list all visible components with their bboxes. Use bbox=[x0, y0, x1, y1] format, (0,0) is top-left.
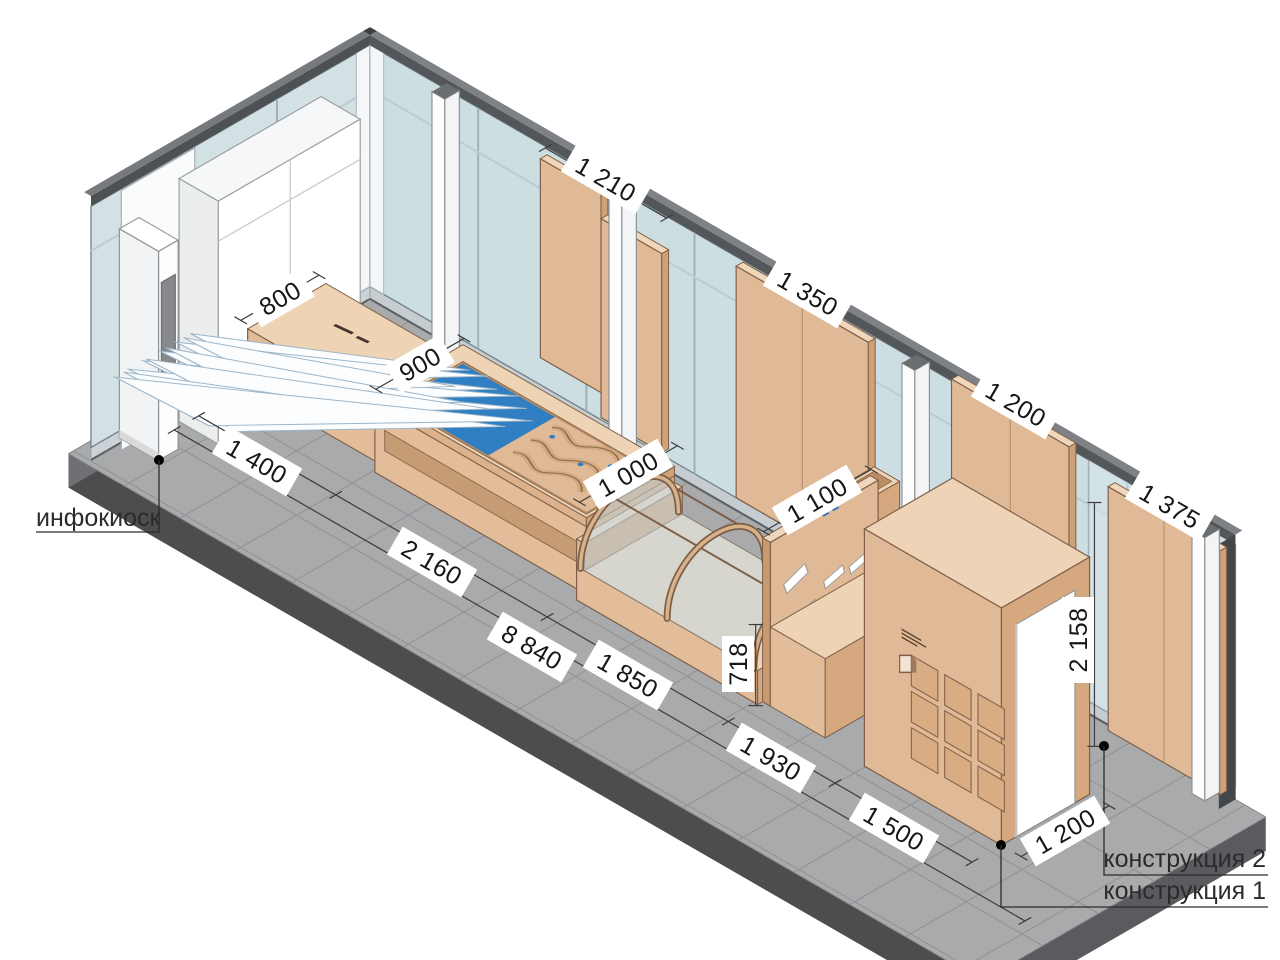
dim-glass-door-height: 2 158 bbox=[1062, 597, 1094, 683]
dim-counter-height: 718 bbox=[722, 636, 754, 692]
infokiosk bbox=[119, 218, 178, 461]
construction-1-label: конструкция 1 bbox=[1103, 877, 1266, 905]
svg-text:718: 718 bbox=[725, 642, 753, 685]
isometric-room-diagram: 800 900 1 000 1 100 1 210 1 350 1 200 1 … bbox=[0, 0, 1280, 960]
diagram-canvas: 800 900 1 000 1 100 1 210 1 350 1 200 1 … bbox=[0, 0, 1280, 960]
construction-2-label: конструкция 2 bbox=[1103, 845, 1266, 873]
svg-text:2 158: 2 158 bbox=[1065, 607, 1093, 672]
infokiosk-label: инфокиоск bbox=[36, 504, 162, 532]
